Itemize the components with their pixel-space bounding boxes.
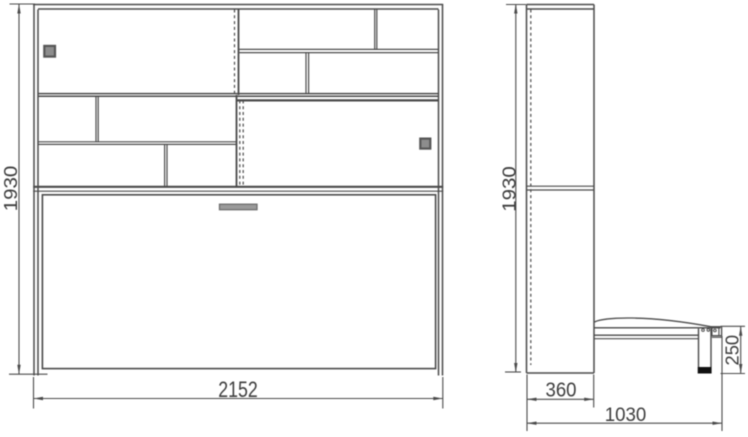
svg-text:360: 360 xyxy=(546,379,577,402)
svg-text:1030: 1030 xyxy=(605,404,647,426)
svg-text:1930: 1930 xyxy=(499,166,519,212)
svg-text:2152: 2152 xyxy=(218,377,258,402)
svg-text:250: 250 xyxy=(723,335,743,366)
svg-text:1930: 1930 xyxy=(1,166,21,212)
